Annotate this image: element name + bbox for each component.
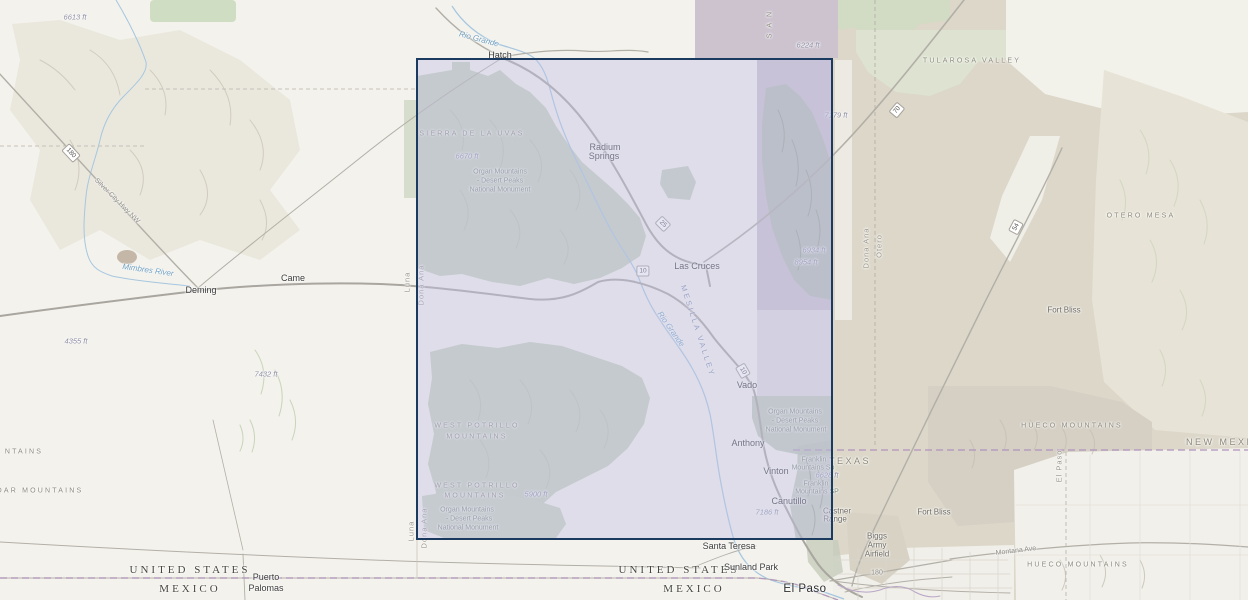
palomas-road (243, 554, 245, 600)
selection-extent[interactable] (416, 58, 833, 540)
columbus-road (213, 420, 243, 550)
map-viewport[interactable]: 6613 ft180Silver City Hwy NWMimbres Rive… (0, 0, 1248, 600)
border-road (0, 542, 700, 568)
intl-border-dashes (0, 578, 838, 600)
road-hatch-e (502, 50, 648, 57)
intl-border-base (0, 578, 838, 600)
road-hatch-nw (436, 8, 502, 57)
